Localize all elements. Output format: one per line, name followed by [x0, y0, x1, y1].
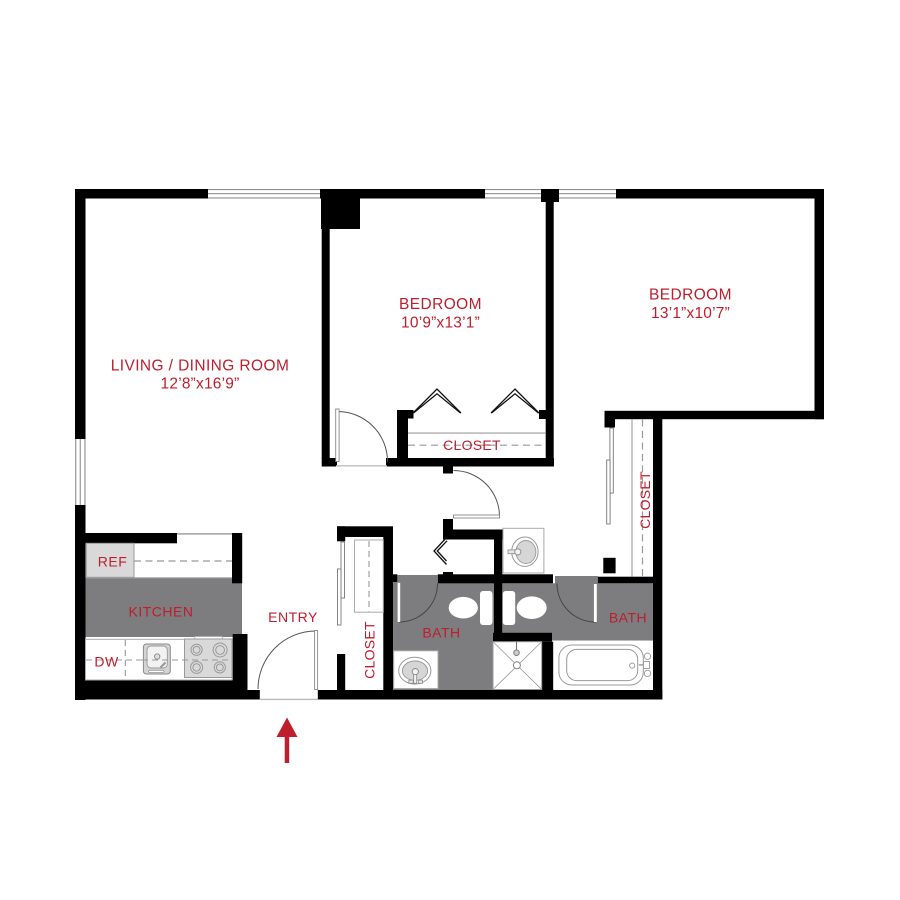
svg-text:13’1”x10’7”: 13’1”x10’7” [651, 305, 730, 322]
svg-text:ENTRY: ENTRY [268, 609, 318, 625]
svg-text:CLOSET: CLOSET [443, 437, 501, 453]
svg-text:LIVING / DINING ROOM: LIVING / DINING ROOM [111, 358, 290, 375]
svg-text:10’9”x13’1”: 10’9”x13’1” [401, 315, 480, 332]
svg-text:REF: REF [98, 554, 128, 570]
svg-text:BATH: BATH [422, 625, 460, 641]
svg-text:CLOSET: CLOSET [362, 621, 378, 679]
svg-text:BEDROOM: BEDROOM [649, 287, 732, 304]
svg-text:DW: DW [94, 654, 119, 670]
svg-text:CLOSET: CLOSET [637, 471, 653, 529]
svg-text:BATH: BATH [609, 610, 647, 626]
svg-text:12’8”x16’9”: 12’8”x16’9” [161, 376, 240, 393]
svg-text:BEDROOM: BEDROOM [399, 296, 482, 313]
svg-text:KITCHEN: KITCHEN [129, 604, 194, 620]
